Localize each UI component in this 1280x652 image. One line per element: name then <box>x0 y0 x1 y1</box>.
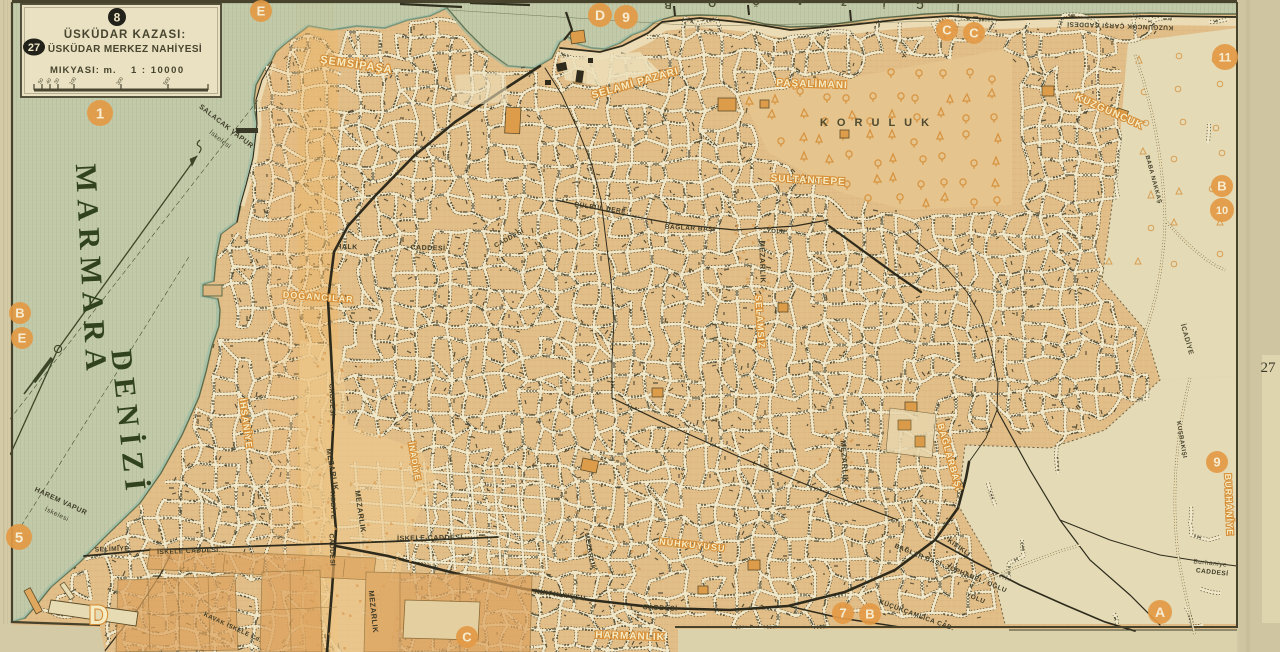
svg-text:İSKELE CADDESİ: İSKELE CADDESİ <box>397 533 463 542</box>
svg-text:1: 1 <box>96 105 104 122</box>
svg-text:1 : 10000: 1 : 10000 <box>131 65 185 76</box>
svg-text:Ç: Ç <box>916 0 924 10</box>
svg-text:CADDESİ: CADDESİ <box>327 533 336 566</box>
svg-text:11: 11 <box>1219 50 1232 64</box>
svg-text:HALK: HALK <box>336 244 358 252</box>
svg-text:E: E <box>18 331 27 346</box>
svg-text:YOLU: YOLU <box>767 229 786 236</box>
svg-text:A: A <box>796 0 804 6</box>
svg-text:D: D <box>595 7 605 23</box>
svg-text:SELİMİYE: SELİMİYE <box>95 544 130 553</box>
svg-text:B: B <box>15 306 24 321</box>
svg-text:Z: Z <box>841 0 848 7</box>
svg-text:ÜSKÜDAR MERKEZ NAHİYESİ: ÜSKÜDAR MERKEZ NAHİYESİ <box>48 42 202 55</box>
svg-text:7: 7 <box>839 606 846 621</box>
svg-text:D: D <box>89 600 110 630</box>
svg-text:K O R U L U K: K O R U L U K <box>820 117 932 129</box>
svg-text:B: B <box>865 607 874 622</box>
svg-text:5: 5 <box>15 529 23 546</box>
svg-text:B: B <box>664 0 672 10</box>
svg-text:C: C <box>462 630 472 645</box>
svg-text:MEZARLIK: MEZARLIK <box>757 240 767 283</box>
svg-text:MIKYASI: m.: MIKYASI: m. <box>50 65 117 76</box>
svg-text:O: O <box>708 0 717 8</box>
svg-text:27: 27 <box>28 42 40 54</box>
svg-text:27: 27 <box>1261 360 1277 376</box>
svg-text:9: 9 <box>1213 455 1220 470</box>
svg-text:ÜSKÜDAR KAZASI:: ÜSKÜDAR KAZASI: <box>64 28 186 41</box>
svg-text:B: B <box>1217 179 1226 194</box>
svg-text:C: C <box>969 26 979 41</box>
svg-text:CADDESİ: CADDESİ <box>410 243 445 252</box>
svg-text:A: A <box>1155 604 1165 620</box>
svg-text:10: 10 <box>1216 205 1228 217</box>
svg-text:E: E <box>257 4 266 19</box>
svg-text:TIBBİYE: TIBBİYE <box>328 490 337 520</box>
svg-text:C: C <box>942 23 952 38</box>
svg-text:CADDESİ: CADDESİ <box>327 383 336 416</box>
svg-text:8: 8 <box>114 11 121 25</box>
svg-text:9: 9 <box>622 9 630 25</box>
